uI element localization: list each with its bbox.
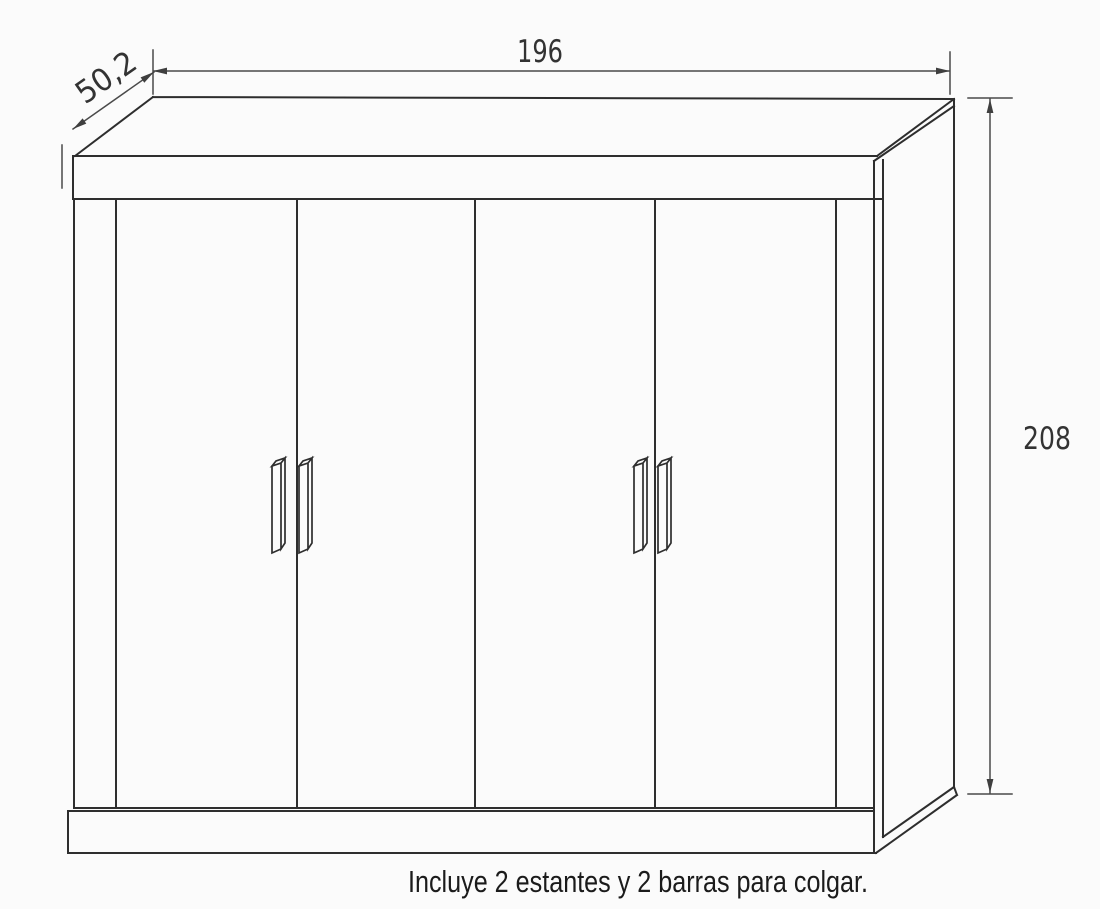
plinth-lines (68, 811, 876, 853)
door-handle (272, 458, 285, 553)
top-panel-lines (73, 97, 954, 199)
wardrobe-outline (68, 97, 957, 853)
height-dimension-label: 208 (1023, 421, 1071, 457)
dimension-height: 208 (968, 98, 1071, 794)
door-handle (658, 458, 671, 553)
door-handles (272, 458, 671, 553)
depth-dimension-label: 50,2 (69, 44, 144, 111)
door-division-lines (74, 161, 874, 811)
door-handle (634, 458, 647, 553)
door-handle (299, 458, 312, 553)
wardrobe-technical-drawing: 196 50,2 208 Incluye 2 estantes y 2 barr… (0, 0, 1100, 909)
screenshot-page: 196 50,2 208 Incluye 2 estantes y 2 barr… (0, 0, 1100, 909)
height-dimension-lines (968, 98, 1012, 794)
dimension-depth: 50,2 (62, 44, 154, 188)
side-panel-lines (876, 99, 957, 853)
caption: Incluye 2 estantes y 2 barras para colga… (408, 864, 868, 899)
dimension-width: 196 (153, 34, 950, 94)
width-dimension-label: 196 (517, 34, 563, 70)
